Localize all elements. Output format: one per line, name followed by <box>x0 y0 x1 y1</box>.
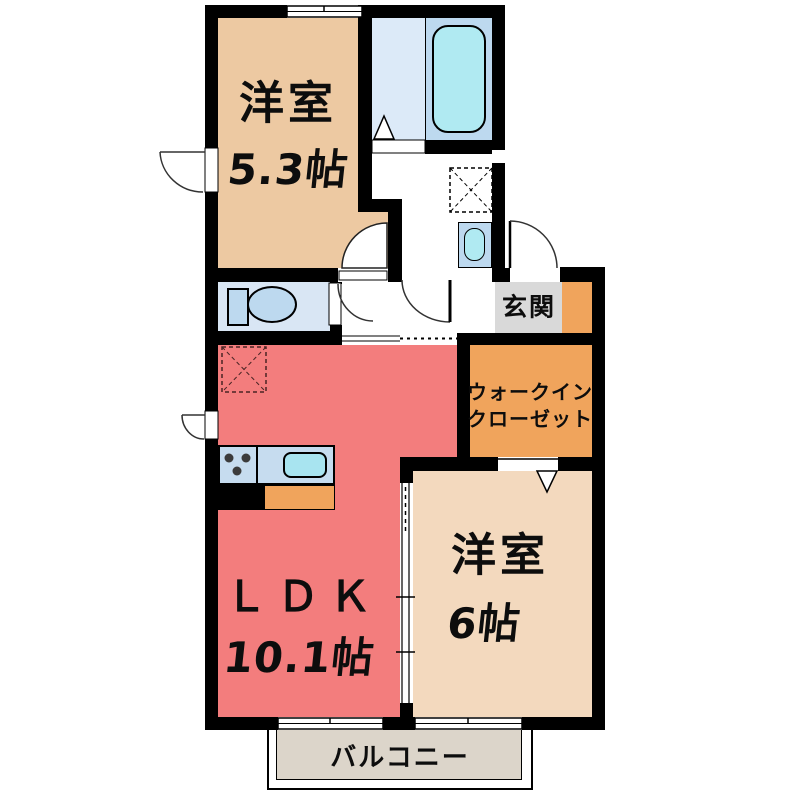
refrigerator-space <box>222 347 266 392</box>
sliding-door-icon <box>396 471 415 703</box>
balcony-door-icon <box>278 718 383 729</box>
stove-icon <box>225 454 251 476</box>
bedroom2-size-label: 6帖 <box>445 603 523 645</box>
ldk-label: ＬＤＫ <box>225 576 381 618</box>
balcony-window-icon <box>415 718 522 729</box>
bedroom2-label: 洋室 <box>451 533 549 578</box>
window-icon <box>287 6 362 17</box>
closet-door-triangle-icon <box>498 458 558 492</box>
floorplan-canvas: 洋室 5.3帖 玄関 ウォークイン クローゼット ＬＤＫ 10.1帖 洋室 6帖… <box>0 0 800 800</box>
cased-opening-icon <box>342 333 457 345</box>
bedroom1-size-label: 5.3帖 <box>226 149 351 191</box>
entrance-door-arc <box>510 221 560 281</box>
plan-symbols-layer <box>0 0 800 800</box>
bedroom1-label: 洋室 <box>239 81 337 126</box>
door-swing-arc <box>182 411 218 439</box>
ldk-size-label: 10.1帖 <box>221 637 376 679</box>
walkin-closet-label-line2: クローゼット <box>467 409 593 429</box>
walkin-closet-label-line1: ウォークイン <box>467 382 593 402</box>
bathroom-door-triangle-icon <box>372 116 425 153</box>
balcony-label: バルコニー <box>330 745 469 771</box>
entrance-label: 玄関 <box>502 295 556 320</box>
window-icon <box>492 150 505 163</box>
washing-machine-space <box>450 168 492 212</box>
door-swing-arc <box>402 280 450 322</box>
door-swing-arc <box>329 283 373 325</box>
door-swing-arc <box>338 223 388 282</box>
door-swing-arc <box>160 148 218 192</box>
